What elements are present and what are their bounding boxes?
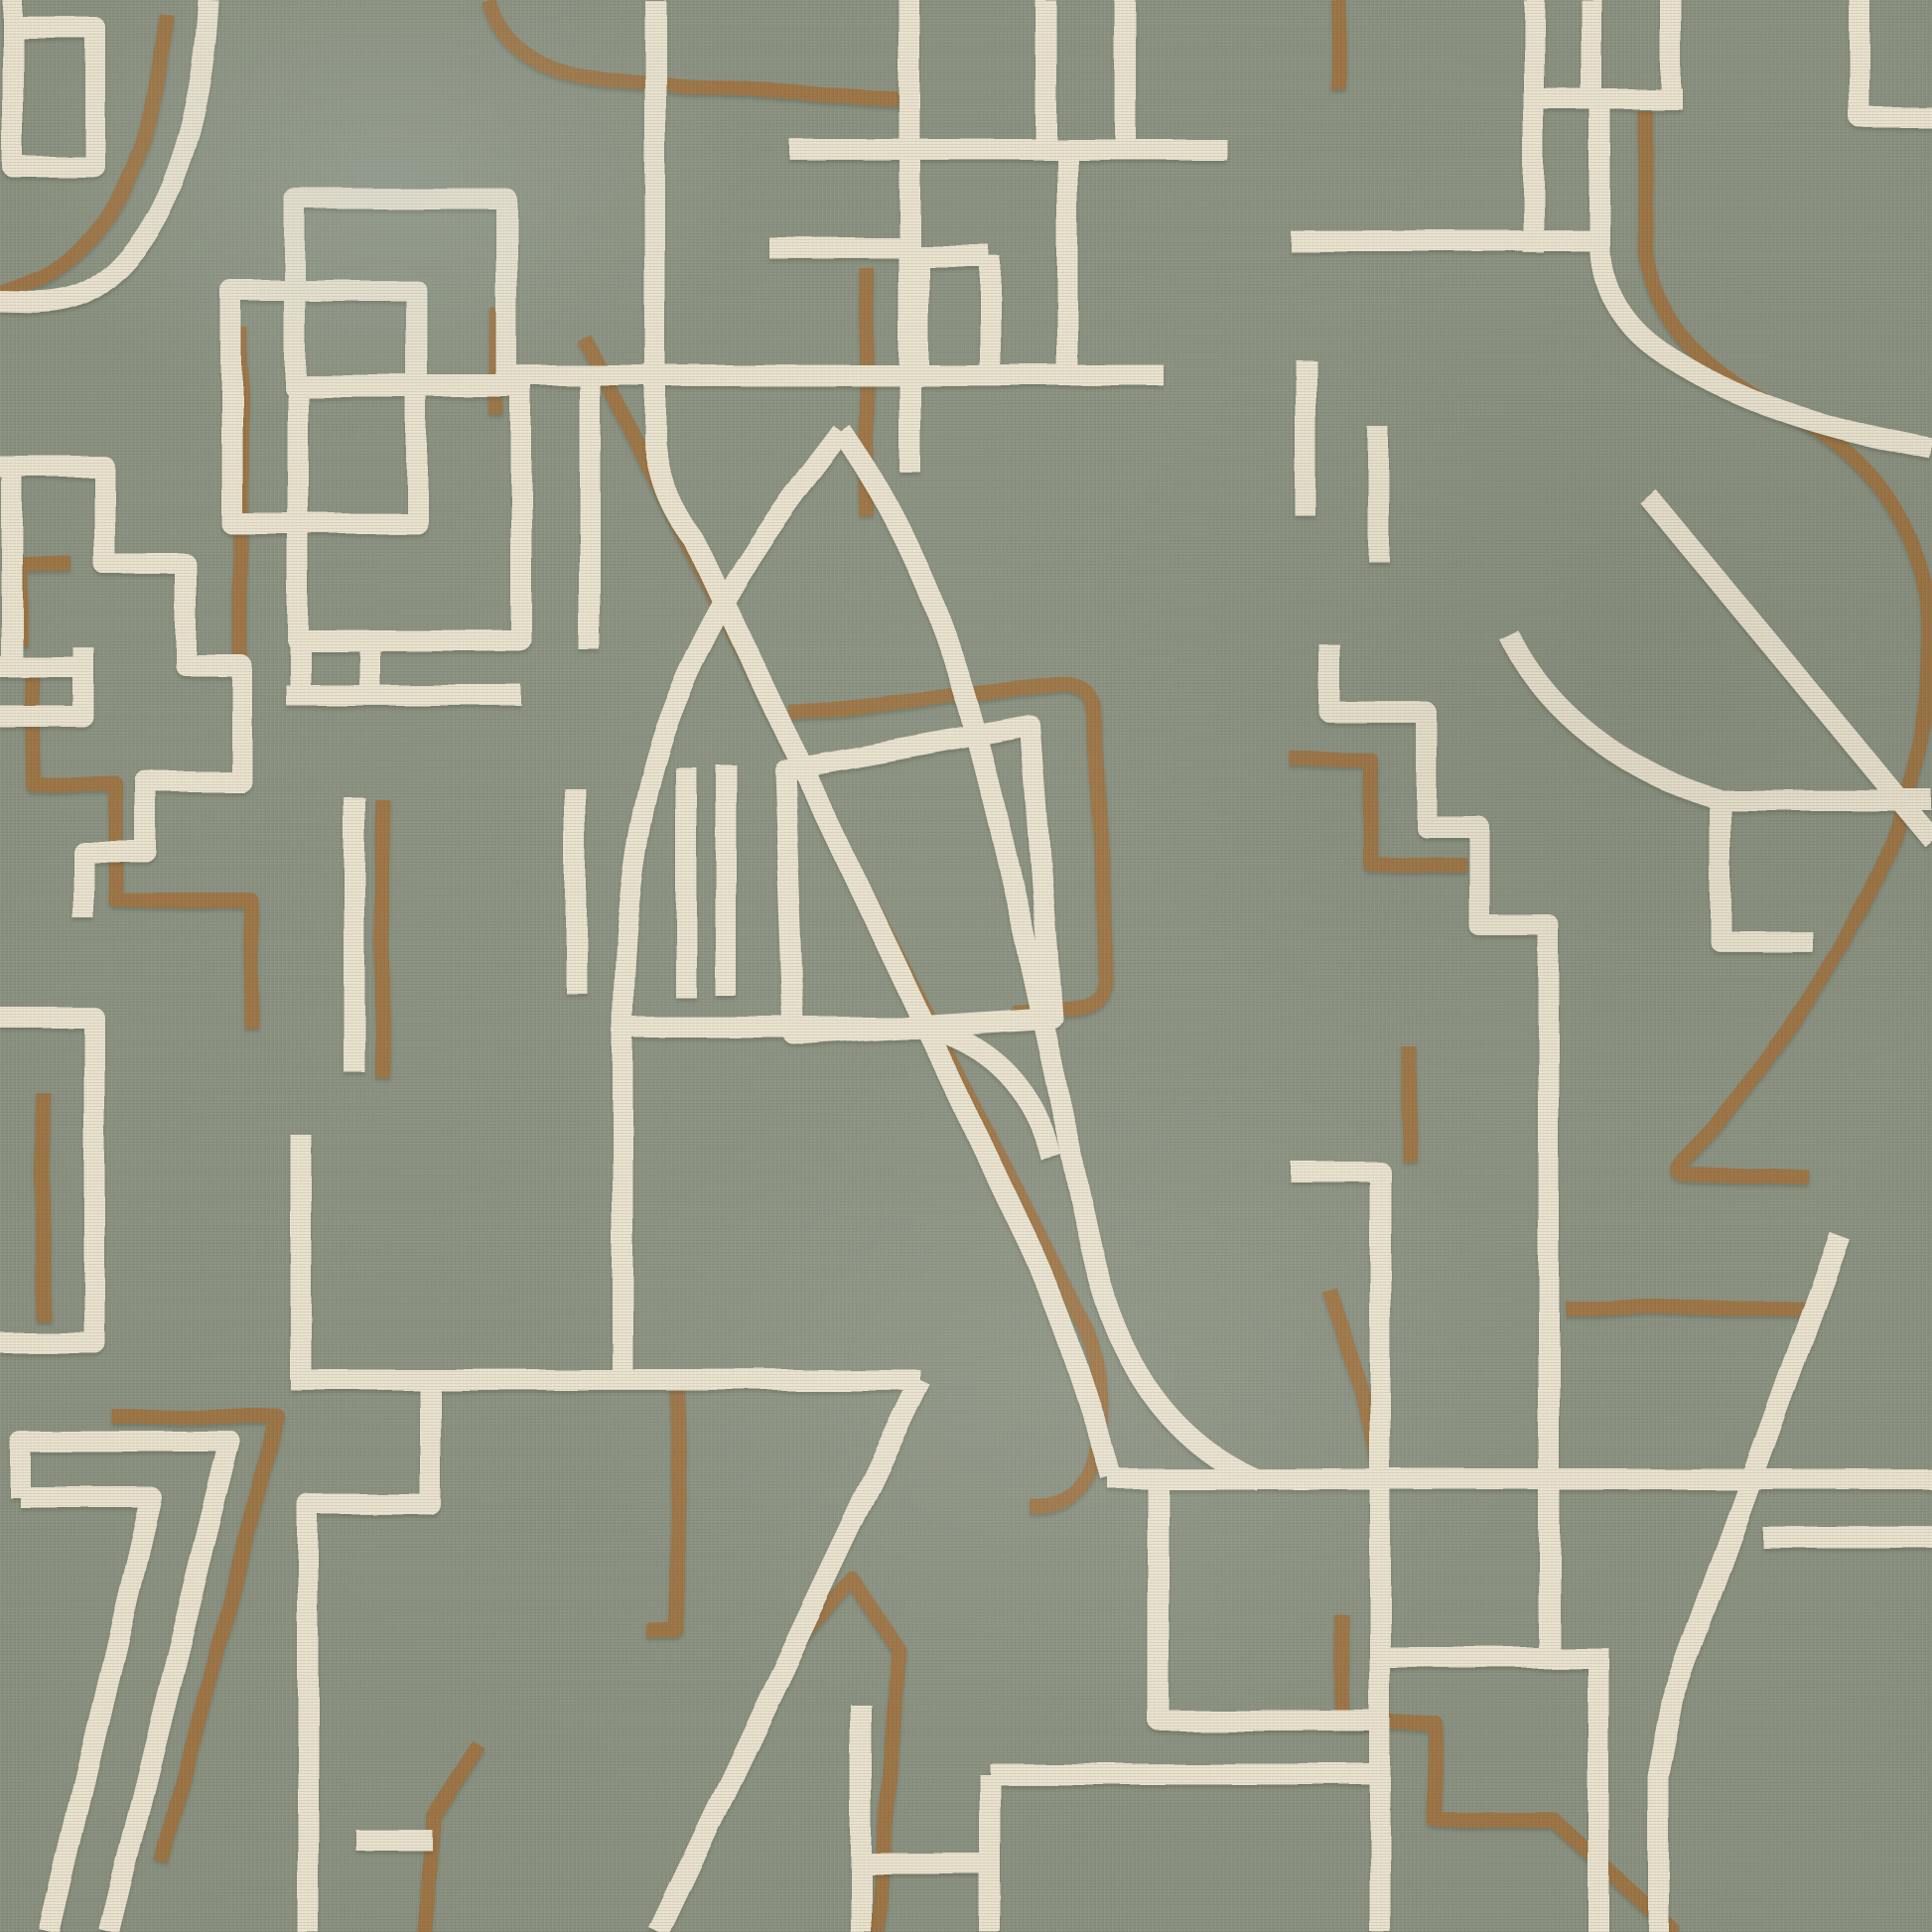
- fabric-swatch: [0, 0, 1932, 1932]
- pattern-svg: [0, 0, 1932, 1932]
